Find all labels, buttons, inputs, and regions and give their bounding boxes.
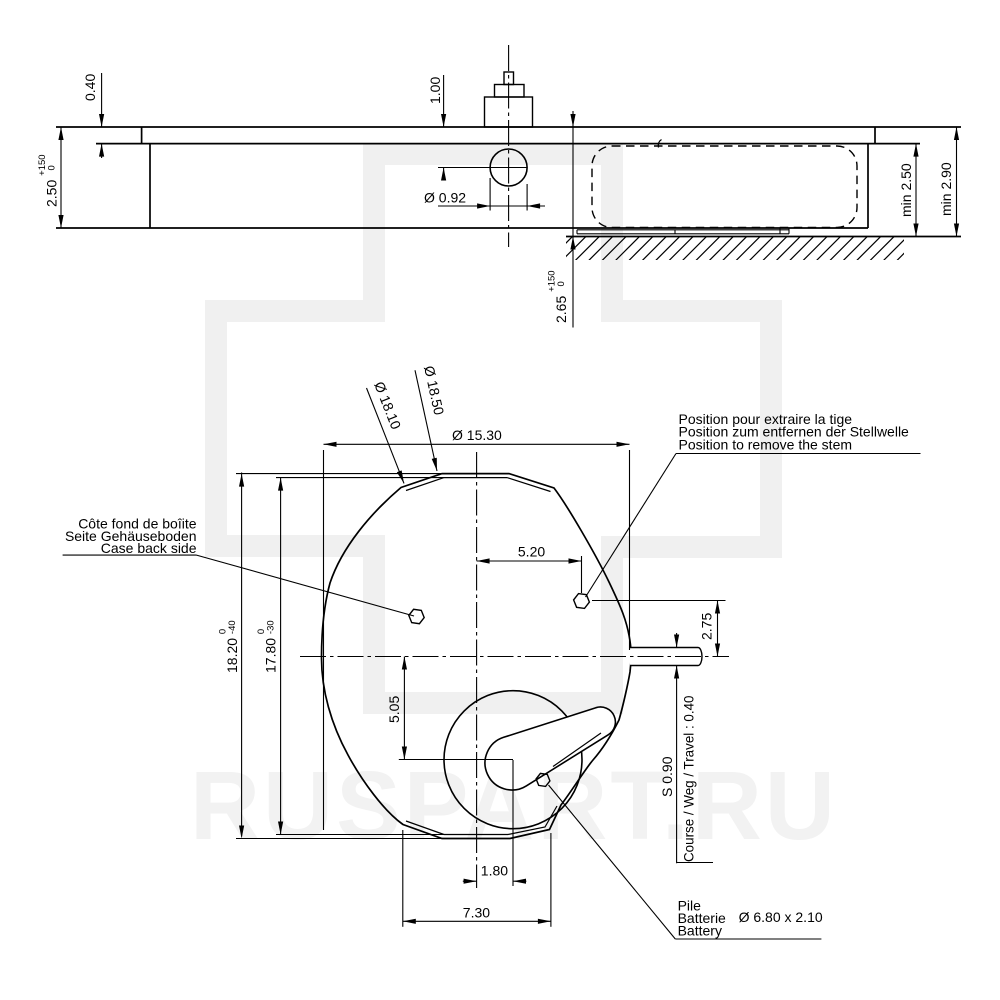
svg-text:Ø 15.30: Ø 15.30 [452,427,502,443]
svg-text:18.20 0-40: 18.20 0-40 [218,620,241,673]
svg-text:Position to remove the stem: Position to remove the stem [679,436,853,452]
svg-text:2.50 +1500: 2.50 +1500 [37,154,60,207]
svg-text:5.05: 5.05 [386,696,402,723]
svg-text:min 2.90: min 2.90 [938,162,954,216]
svg-text:1.00: 1.00 [427,77,443,104]
svg-text:Ø 6.80 x 2.10: Ø 6.80 x 2.10 [739,909,823,925]
svg-text:Ø 18.50: Ø 18.50 [421,364,447,416]
svg-text:2.65 +1500: 2.65 +1500 [547,270,570,323]
svg-text:5.20: 5.20 [518,544,545,560]
svg-text:Course / Weg / Travel : 0.40: Course / Weg / Travel : 0.40 [682,696,697,862]
svg-text:Battery: Battery [678,923,722,939]
svg-text:Case back side: Case back side [101,540,197,556]
svg-text:Ø 18.10: Ø 18.10 [371,379,404,431]
svg-text:Ø 0.92: Ø 0.92 [424,190,466,206]
svg-text:min 2.50: min 2.50 [898,163,914,217]
svg-text:2.75: 2.75 [699,613,715,640]
svg-text:0.40: 0.40 [82,74,98,101]
svg-text:S 0.90: S 0.90 [659,756,675,797]
svg-text:7.30: 7.30 [463,905,490,921]
svg-text:1.80: 1.80 [481,863,508,879]
svg-text:17.80 0-30: 17.80 0-30 [256,620,279,673]
